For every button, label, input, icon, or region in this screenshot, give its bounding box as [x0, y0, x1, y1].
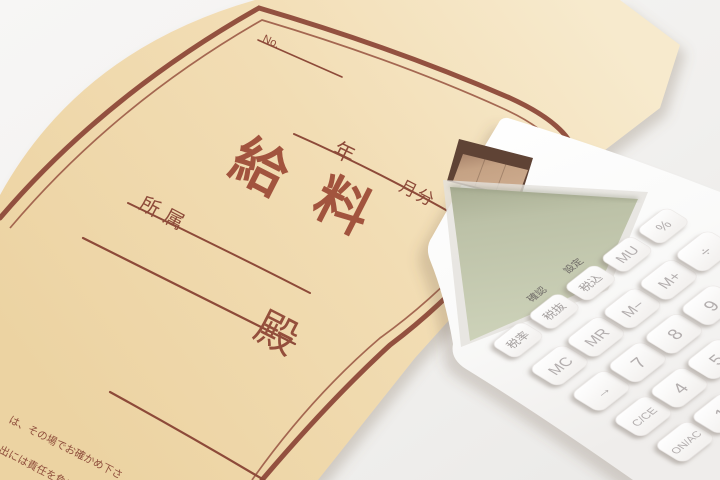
- photo-canvas: No. 年 月分 給 料 所属 殿 は、その場でお確かめ下さ 出には責任を負いか…: [0, 0, 720, 480]
- photo-scene: No. 年 月分 給 料 所属 殿 は、その場でお確かめ下さ 出には責任を負いか…: [0, 0, 720, 480]
